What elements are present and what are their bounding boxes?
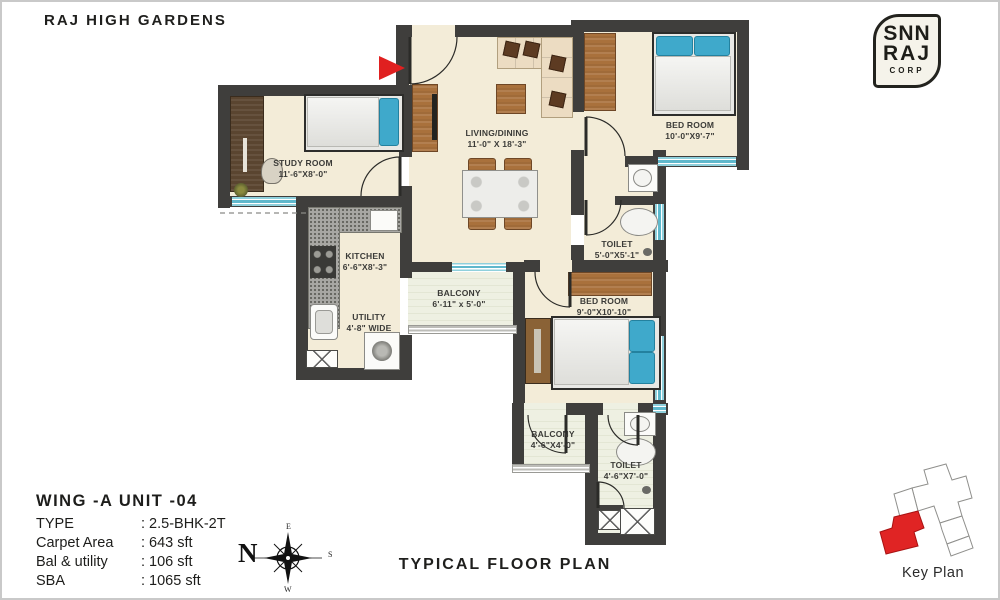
entry-arrow xyxy=(379,56,405,80)
wall xyxy=(506,262,525,272)
washer-door xyxy=(372,341,392,361)
wall xyxy=(571,150,584,215)
dining-table xyxy=(462,170,538,218)
compass-west-label: W xyxy=(284,585,292,594)
basin-bowl xyxy=(633,169,652,187)
room-label-bedroom1: BED ROOM10'-0"X9'-7" xyxy=(640,120,740,142)
wall xyxy=(396,25,412,37)
wall xyxy=(566,403,603,415)
double-bed xyxy=(652,32,736,116)
shower-head-icon xyxy=(642,486,651,494)
room-label-balcony1: BALCONY6'-11" x 5'-0" xyxy=(419,288,499,310)
sofa-cushion xyxy=(503,41,521,59)
shower-tiles xyxy=(620,508,655,535)
room-label-utility: UTILITY4'-8" WIDE xyxy=(329,312,409,334)
compass-north-label: N xyxy=(238,538,258,569)
mattress xyxy=(307,97,379,147)
door-opening xyxy=(584,156,625,167)
info-row: TYPE: 2.5-BHK-2T xyxy=(36,515,226,534)
balcony2-railing xyxy=(512,464,590,473)
balcony1-railing xyxy=(408,325,517,334)
room-label-balcony2: BALCONY4'-6"X4'-0" xyxy=(513,429,593,451)
sofa-cushion xyxy=(523,41,541,59)
wall xyxy=(513,262,525,415)
plan-title: TYPICAL FLOOR PLAN xyxy=(395,556,615,574)
info-row: Carpet Area: 643 sft xyxy=(36,534,226,553)
room-label-living: LIVING/DINING11'-0" X 18'-3" xyxy=(437,128,557,150)
door-panel-inset xyxy=(534,329,541,373)
door-opening xyxy=(540,260,572,272)
info-row: SBA: 1065 sft xyxy=(36,572,226,591)
window xyxy=(232,197,296,206)
wall xyxy=(408,262,452,272)
logo-line1: SNN xyxy=(876,24,938,44)
room-label-bedroom2: BED ROOM9'-0"X10'-10" xyxy=(554,296,654,318)
pillow xyxy=(656,36,693,56)
key-plan-icon xyxy=(872,460,992,564)
cutting-board xyxy=(370,210,398,231)
pillow xyxy=(629,320,655,352)
window xyxy=(658,157,736,166)
compass-south-label: S xyxy=(328,550,332,559)
room-label-toilet1: TOILET5'-0"X5'-1" xyxy=(577,239,657,261)
room-label-study: STUDY ROOM11'-6"X8'-0" xyxy=(258,158,348,180)
double-bed xyxy=(551,316,661,390)
toilet-wc xyxy=(620,208,658,236)
desk-pen xyxy=(243,138,247,172)
door-opening xyxy=(412,25,455,37)
washbasin xyxy=(624,412,656,436)
compass-rose-icon xyxy=(250,528,326,590)
shaft xyxy=(306,350,338,368)
unit-heading: WING -A UNIT -04 xyxy=(36,492,226,511)
wall xyxy=(571,20,749,32)
mattress xyxy=(655,56,731,111)
logo-line2: RAJ xyxy=(876,44,938,64)
door-opening xyxy=(524,403,566,415)
balcony-door-panel xyxy=(525,318,551,384)
washbasin xyxy=(628,164,658,192)
floor-plan-page: RAJ HIGH GARDENS SNN RAJ CORP xyxy=(0,0,1000,600)
wardrobe xyxy=(568,272,652,296)
pillow xyxy=(379,98,399,146)
key-plan-label: Key Plan xyxy=(878,565,988,581)
developer-logo: SNN RAJ CORP xyxy=(873,14,941,88)
wall xyxy=(737,20,749,170)
pillow xyxy=(694,36,730,56)
project-title: RAJ HIGH GARDENS xyxy=(44,12,227,29)
room-label-kitchen: KITCHEN6'-6"X8'-3" xyxy=(330,251,400,273)
study-single-bed xyxy=(304,94,404,152)
wardrobe xyxy=(584,33,616,111)
sofa-cushion xyxy=(549,91,567,109)
wall xyxy=(455,25,583,37)
wall xyxy=(400,335,412,380)
plant xyxy=(234,183,248,197)
sofa-cushion xyxy=(549,55,567,73)
logo-sub: CORP xyxy=(876,66,938,75)
unit-info: WING -A UNIT -04 TYPE: 2.5-BHK-2T Carpet… xyxy=(36,492,226,592)
shower-tiles xyxy=(598,510,622,530)
wall xyxy=(615,196,655,205)
wall xyxy=(218,85,230,208)
door-opening xyxy=(584,196,615,205)
coffee-table xyxy=(496,84,526,114)
washing-machine xyxy=(364,332,400,370)
info-row: Bal & utility: 106 sft xyxy=(36,553,226,572)
window xyxy=(452,263,506,271)
compass-east-label: E xyxy=(286,522,291,531)
wall xyxy=(524,260,540,272)
room-label-toilet2: TOILET4'-6"X7'-0" xyxy=(590,460,662,482)
basin-bowl xyxy=(630,416,650,432)
pillow xyxy=(629,352,655,384)
mattress xyxy=(554,319,629,385)
wall xyxy=(572,260,668,272)
